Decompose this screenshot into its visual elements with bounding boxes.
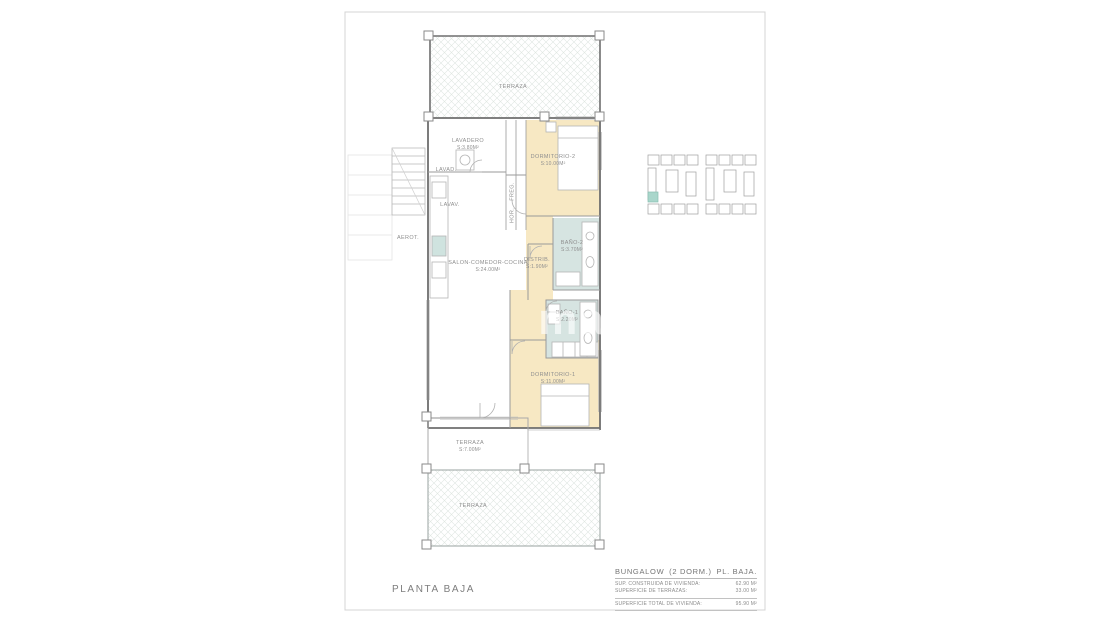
fixture-label-freg: FREG. [510, 182, 517, 201]
room-label-terraza-bottom: TERRAZA [459, 503, 487, 510]
keyplan [648, 155, 756, 214]
room-label-salon: SALON-COMEDOR-COCINA S:24.00M² [448, 260, 527, 274]
surface-total-row: SUPERFICIE TOTAL DE VIVIENDA: 95.90 M² [615, 598, 757, 611]
terraza-lower-shapes [428, 417, 600, 546]
floor-label: PL. BAJA. [717, 567, 757, 576]
room-label-lavadero: LAVADERO S:3.80M² [452, 138, 484, 152]
surface-row: SUP. CONSTRUIDA DE VIVIENDA: 62.90 M² [615, 581, 757, 588]
fixture-label-hor: HOR. [510, 208, 517, 223]
floorplan-sheet: TERRAZA LAVADERO S:3.80M² LAVAD. DORMITO… [0, 0, 1110, 626]
title-block-header: BUNGALOW (2 DORM.) PL. BAJA. [615, 567, 757, 579]
surface-row: SUPERFICIE DE TERRAZAS: 33.00 M² [615, 588, 757, 595]
fixture-label-lavad: LAVAD. [436, 167, 457, 174]
dorm-count-label: (2 DORM.) [669, 567, 712, 576]
building-type-label: BUNGALOW [615, 567, 664, 576]
room-label-terraza-top: TERRAZA [499, 84, 527, 91]
room-label-dormitorio2: DORMITORIO-2 S:10.00M² [531, 154, 576, 168]
bed-icon [541, 384, 589, 426]
room-label-terraza-mid: TERRAZA S:7.00M² [456, 440, 484, 454]
fixture-label-lavav: LAVAV. [440, 202, 460, 209]
stairs [348, 148, 425, 260]
plan-title: PLANTA BAJA [392, 584, 475, 595]
room-label-bano2: BAÑO-2 S:3.70M² [561, 240, 584, 254]
room-label-bano1: BAÑO-1 S:2.20M² [556, 310, 579, 324]
title-block: BUNGALOW (2 DORM.) PL. BAJA. SUP. CONSTR… [615, 567, 757, 611]
fixture-label-aerot: AEROT. [397, 235, 419, 242]
terraza-top-shape [430, 36, 600, 118]
room-label-distrib: DISTRIB. S:1.90M² [524, 257, 550, 271]
keyplan-highlight [648, 192, 658, 202]
room-label-dormitorio1: DORMITORIO-1 S:11.00M² [531, 372, 576, 386]
